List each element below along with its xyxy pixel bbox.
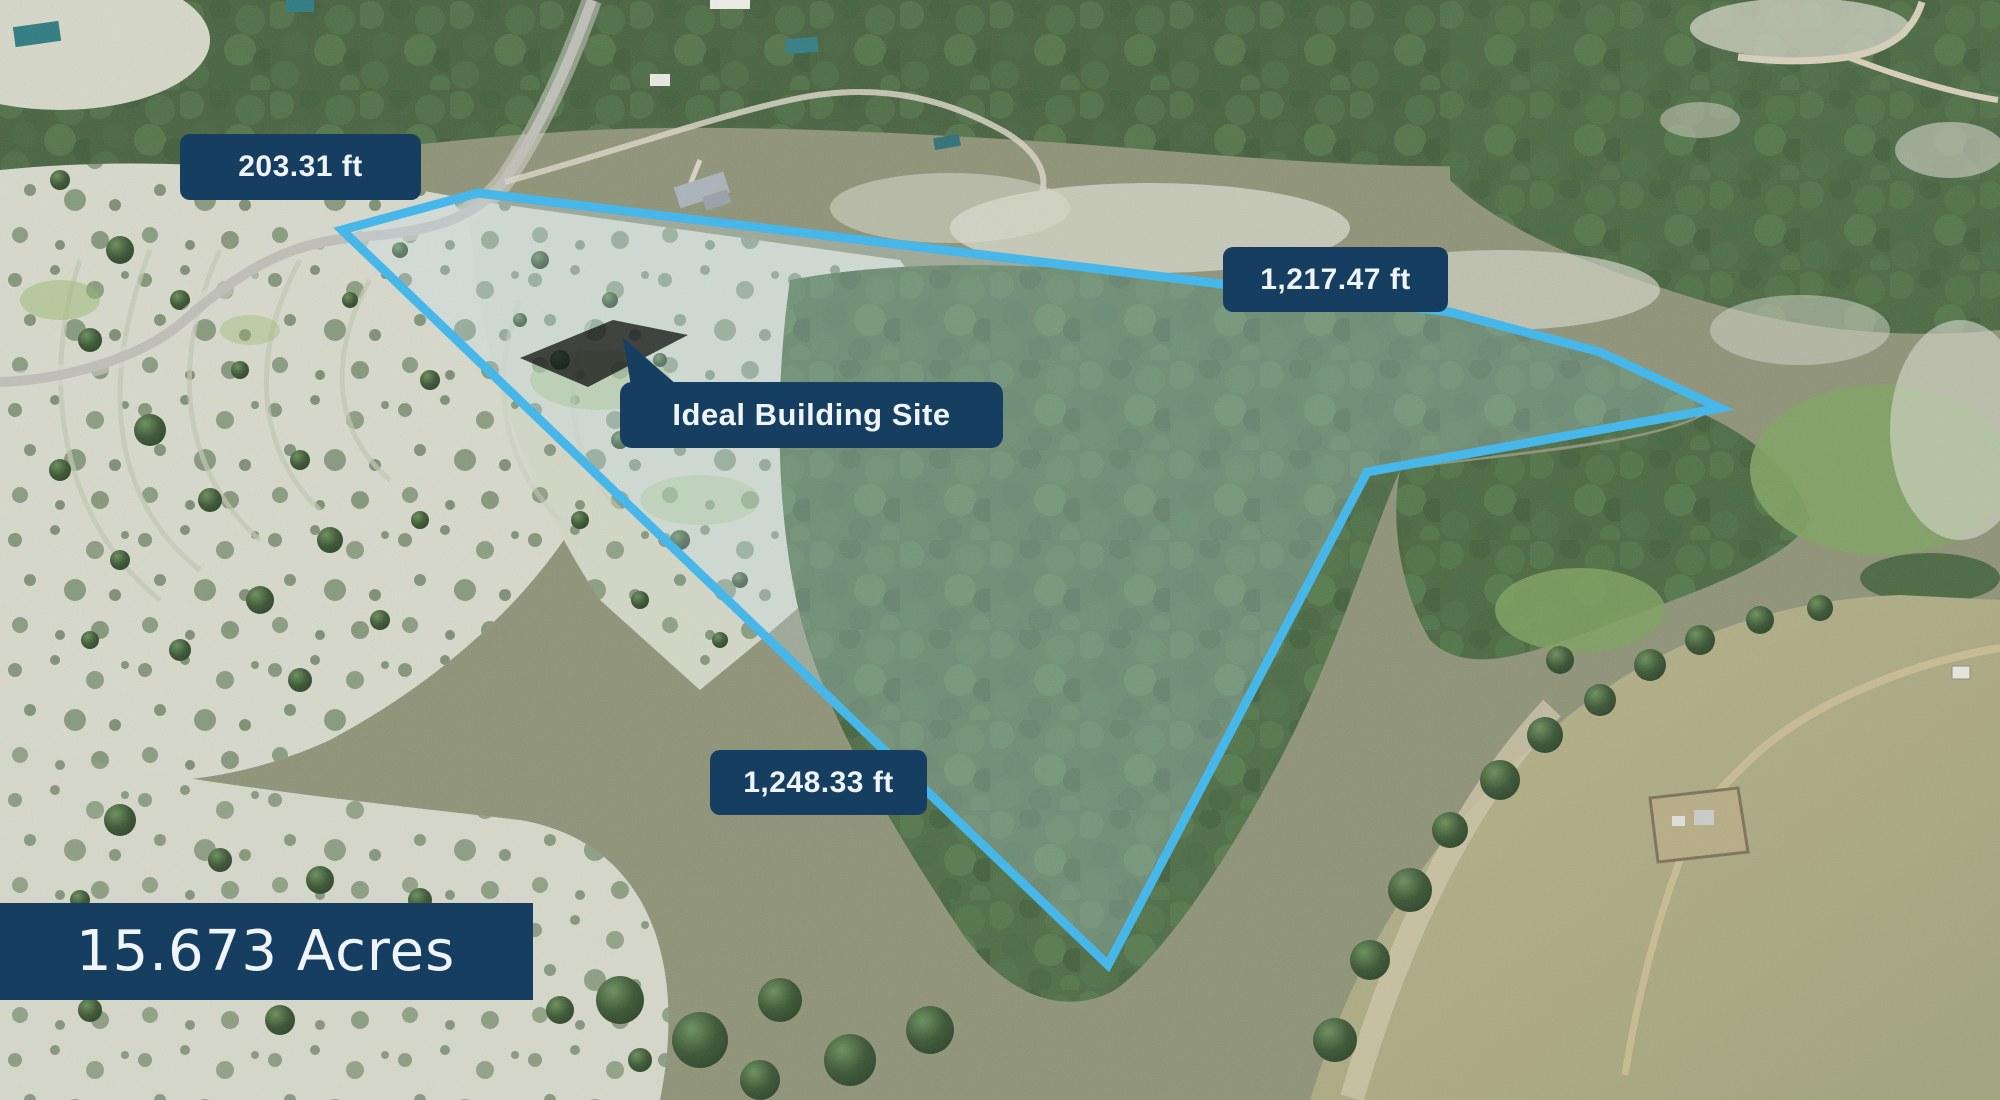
acreage-banner: 15.673 Acres bbox=[0, 903, 533, 1000]
measurement-label-west-edge: 1,248.33 ft bbox=[710, 750, 927, 815]
measurement-label-east-edge: 1,217.47 ft bbox=[1223, 247, 1448, 312]
building-site-callout: Ideal Building Site bbox=[620, 382, 1003, 448]
measurement-label-north-edge: 203.31 ft bbox=[180, 134, 421, 200]
property-boundary bbox=[342, 193, 1720, 965]
aerial-property-map: 203.31 ft 1,217.47 ft Ideal Building Sit… bbox=[0, 0, 2000, 1100]
